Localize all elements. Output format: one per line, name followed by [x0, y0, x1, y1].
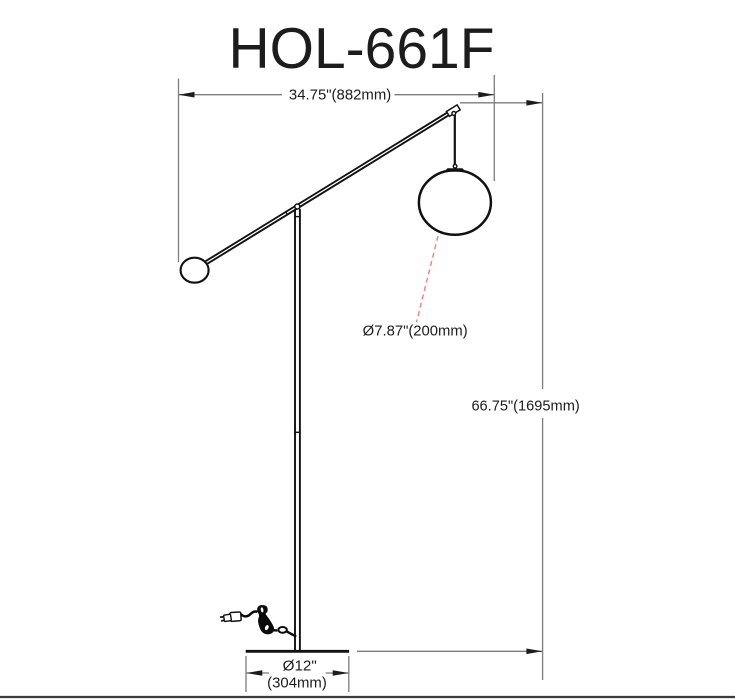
svg-text:Ø12": Ø12" — [283, 659, 317, 675]
svg-text:34.75"(882mm): 34.75"(882mm) — [289, 88, 391, 104]
svg-text:(304mm): (304mm) — [267, 676, 327, 692]
svg-text:HOL-661F: HOL-661F — [229, 17, 495, 81]
svg-text:Ø7.87"(200mm): Ø7.87"(200mm) — [363, 323, 468, 339]
svg-text:66.75"(1695mm): 66.75"(1695mm) — [471, 398, 579, 414]
